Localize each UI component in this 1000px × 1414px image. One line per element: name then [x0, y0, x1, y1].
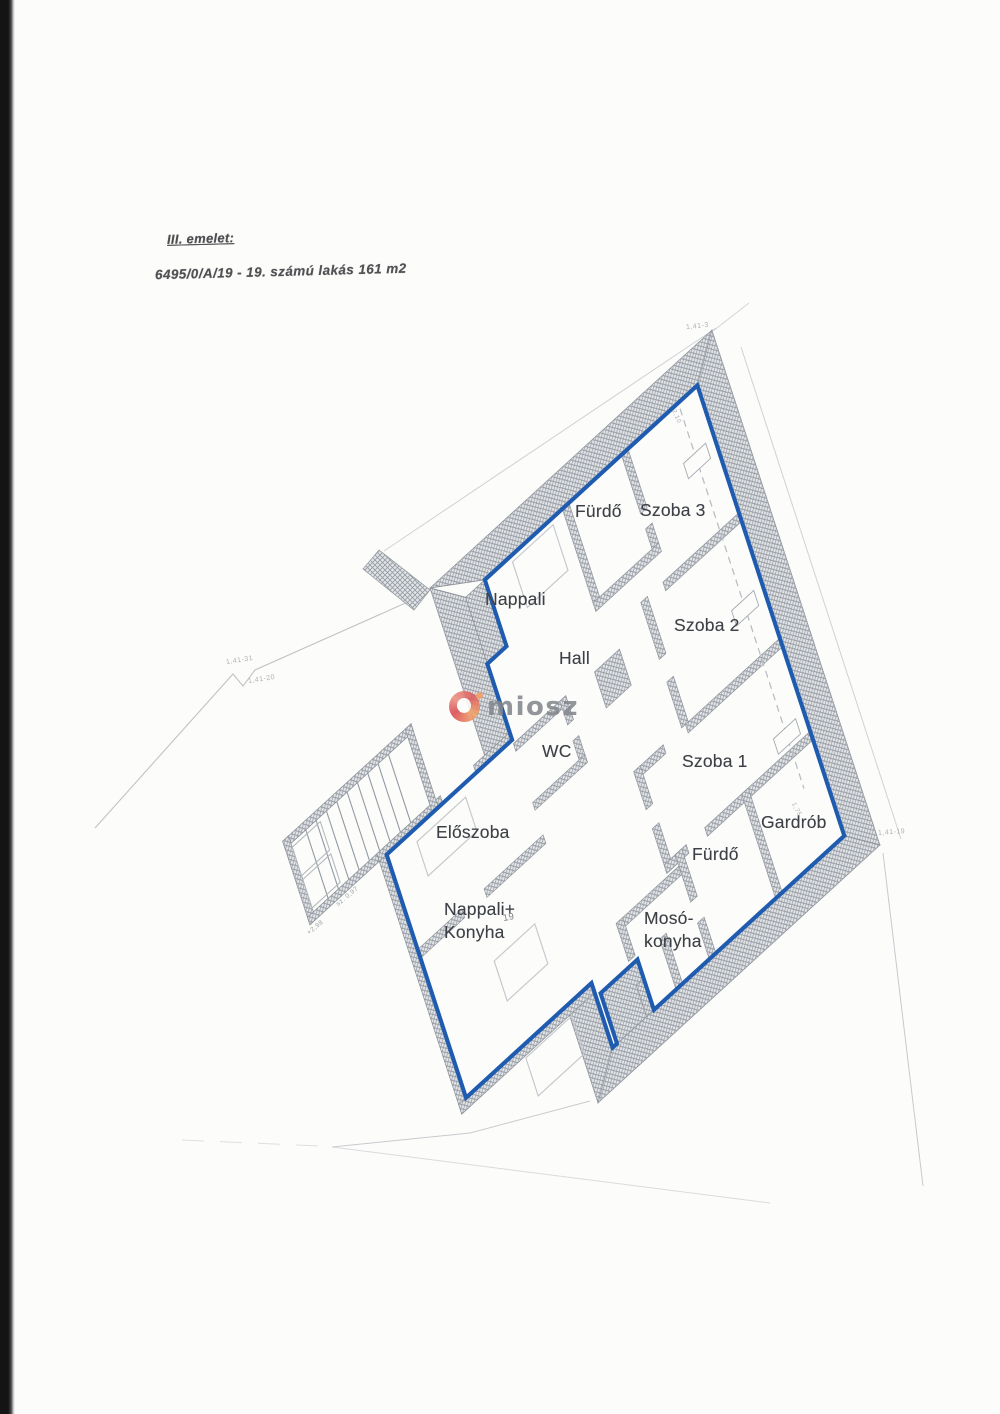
- room-label-szoba3: Szoba 3: [640, 499, 706, 522]
- room-label-szoba2: Szoba 2: [674, 614, 740, 637]
- room-label-nappali: Nappali: [485, 588, 546, 611]
- plan-transform-group: [253, 330, 880, 1265]
- room-label-szoba1: Szoba 1: [682, 750, 748, 773]
- room-label-wc: WC: [542, 740, 572, 763]
- annex-walls: [283, 656, 595, 1177]
- room-label-eloszoba: Előszoba: [436, 821, 510, 844]
- room-label-gardrob: Gardrób: [761, 811, 827, 834]
- miosz-logo-icon: [449, 691, 480, 722]
- scanned-floorplan-page: III. emelet: 6495/0/A/19 - 19. számú lak…: [0, 0, 1000, 1414]
- room-label-hall: Hall: [559, 647, 590, 670]
- unit-number-mark: 19: [502, 911, 516, 924]
- neighbor-wall-stub: [363, 550, 430, 610]
- watermark-logo: miosz: [449, 691, 579, 722]
- room-label-furdo-top: Fürdő: [575, 500, 622, 523]
- watermark-brand-text: miosz: [487, 692, 579, 722]
- room-label-furdo-bottom: Fürdő: [692, 843, 739, 866]
- room-label-moso-konyha: Mosó- konyha: [644, 907, 702, 953]
